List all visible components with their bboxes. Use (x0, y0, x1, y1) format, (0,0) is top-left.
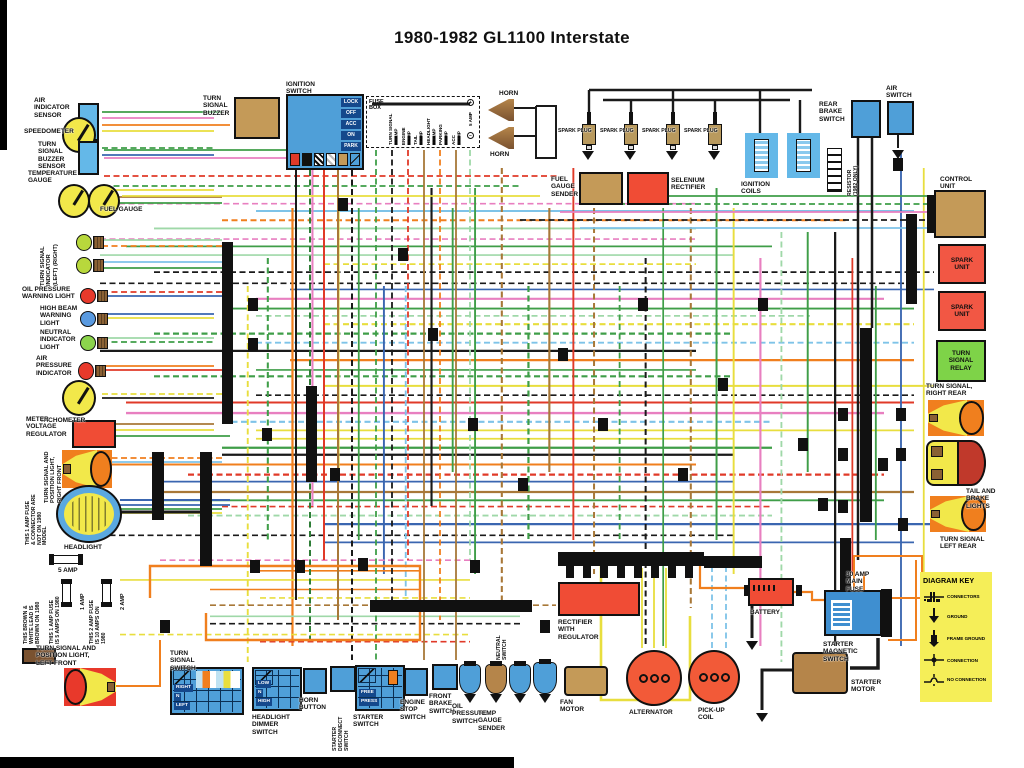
ignition-switch-grid (290, 98, 338, 150)
tachometer (62, 380, 96, 416)
horn-lower-label: HORN (490, 151, 516, 158)
switch-row-press: PRESS (359, 698, 379, 706)
spark-unit-1: SPARK UNIT (938, 244, 986, 284)
terminal-cell (350, 153, 360, 166)
tail-and-brake-lights (926, 440, 986, 486)
bulb-glass (76, 257, 92, 274)
bulb-base (97, 290, 108, 302)
switch-diagonal-cell (358, 668, 376, 683)
key-connection-label: CONNECTION (947, 658, 978, 663)
neutral-switch (509, 664, 531, 694)
coil-loop-icon (721, 673, 730, 682)
turn-signal-switch: RIGHTNLEFT (170, 667, 244, 715)
fan-motor (564, 666, 608, 696)
fuse-1amp (62, 580, 71, 606)
switch-row-left: LEFT (174, 702, 190, 710)
key-item: CONNECTION (923, 653, 990, 667)
coil-winding (754, 139, 769, 171)
turn-signal-left-rear-label: TURN SIGNAL LEFT REAR (940, 536, 1004, 551)
lamp-bulb-base (107, 682, 115, 691)
plug-tip (712, 145, 717, 151)
fuse-box: FUSE BOX TURN SIGNAL 15 AMPENGINE 5 AMPT… (366, 96, 480, 148)
turn-signal-position-light-left-front-label: TURN SIGNAL AND POSITION LIGHT, LEFT FRO… (36, 645, 122, 667)
bulb-cap (490, 661, 501, 666)
ground-arrow-icon (624, 151, 636, 160)
bulb-cap (464, 661, 475, 666)
gauge-needle (102, 190, 113, 206)
horn-button (303, 668, 327, 694)
ignition-position-lock: LOCK (341, 98, 361, 107)
switch-row-right: RIGHT (174, 684, 193, 692)
switch-row-free: FREE (359, 689, 376, 697)
scan-artifact (0, 757, 514, 768)
neutral-indicator-light-label: NEUTRAL INDICATOR LIGHT (40, 329, 84, 351)
fuse-slot: TURN SIGNAL 15 AMP (388, 99, 400, 145)
key-frame-ground-label: FRAME GROUND (947, 636, 985, 641)
ignition-coil-1 (745, 133, 778, 178)
bulb-glass (80, 288, 96, 304)
starter-motor-label: STARTER MOTOR (851, 679, 891, 694)
page-title: 1980-1982 GL1100 Interstate (0, 28, 1024, 48)
terminal-amp-label: 5 AMP (468, 107, 473, 131)
turn-signal-position-light-right-front (62, 450, 112, 488)
horn-button-label: HORN BUTTON (299, 697, 333, 712)
fuse-slot: TAIL 5 AMP (413, 99, 425, 145)
selenium-rectifier (627, 172, 669, 205)
ignition-switch-label: IGNITION SWITCH (286, 81, 326, 96)
turn-signal-indicator-left-bulb (76, 234, 104, 251)
ignition-position-acc: ACC (341, 120, 361, 129)
ground-arrow-icon (464, 694, 476, 703)
lamp-bulb-base (929, 414, 938, 423)
fuse-slot: ACC 5 AMP (451, 99, 463, 145)
lamp-bulb-base (931, 510, 940, 519)
fuse-5amp (50, 555, 82, 564)
plug-stem (671, 112, 675, 125)
control-unit (934, 190, 986, 238)
bulb-base (95, 365, 106, 378)
high-beam-warning-light (80, 311, 108, 327)
ground-arrow-icon (666, 151, 678, 160)
plug-stem (629, 112, 633, 125)
temp-gauge-sender (485, 664, 507, 694)
tail-bulb (931, 469, 942, 480)
turn-signal-position-light-left-front (64, 668, 116, 706)
tail-lens (957, 440, 986, 486)
terminal-cell (338, 153, 348, 166)
ground-arrow-icon (514, 694, 526, 703)
pick-up-coil (688, 650, 740, 704)
key-connectors-icon (923, 591, 945, 603)
ignition-coil-2 (787, 133, 820, 178)
spark-unit-2: SPARK UNIT (938, 291, 986, 331)
fuse-box-label: FUSE BOX (369, 99, 384, 111)
spark-plug-2-label: SPARK PLUG (600, 129, 640, 135)
front-brake-switch (432, 664, 458, 690)
diagram-key: DIAGRAM KEY CONNECTORSGROUNDFRAME GROUND… (920, 572, 992, 702)
alternator (626, 650, 682, 706)
fuse-slot: PARKING 5 AMP (438, 99, 450, 145)
switch-rows: LOWNHIGH (256, 680, 272, 706)
key-item: GROUND (923, 608, 990, 624)
headlight (58, 487, 120, 541)
ground-arrow-icon (539, 694, 551, 703)
high-beam-warning-light-label: HIGH BEAM WARNING LIGHT (40, 305, 84, 327)
spark-plug-4-label: SPARK PLUG (684, 129, 724, 135)
starter-magnetic-switch-label: STARTER MAGNETIC SWITCH (823, 641, 871, 663)
switch-row-n: N (174, 693, 181, 701)
battery-label: BATTERY (750, 609, 790, 616)
meter-voltage-regulator-label: METER VOLTAGE REGULATOR (26, 416, 70, 438)
note-1amp-1980-label: THIS 1 AMP FUSE IS 5 AMPS ON 1980 (50, 596, 62, 644)
gauge-needle (72, 190, 83, 206)
key-item: NO CONNECTION (923, 673, 990, 687)
spark-plug-1-label: SPARK PLUG (558, 129, 598, 135)
ignition-switch-positions: LOCKOFFACCONPARK (341, 98, 361, 151)
fuel-gauge-sender (579, 172, 623, 205)
ground-arrow-icon (490, 694, 502, 703)
turn-signal-right-rear (928, 400, 984, 436)
main-fuse-note-label: 30 AMP MAIN FUSE (846, 571, 882, 593)
key-item: FRAME GROUND (923, 630, 990, 648)
spark-plug-1 (581, 112, 597, 160)
starter-disconnect-switch-label: STARTER DISCONNECT SWITCH (333, 717, 350, 751)
scan-artifact (0, 0, 7, 150)
fuel-gauge-sender-label: FUEL GAUGE SENDER (551, 176, 578, 198)
terminal-cell (326, 153, 336, 166)
lamp-bulb-base (63, 464, 71, 473)
horn-upper-label: HORN (499, 90, 525, 97)
alternator-label: ALTERNATOR (629, 709, 687, 716)
fuse-slot: HEADLIGHT 10 AMP (426, 99, 438, 145)
accessory-terminal: + 5 AMP − (463, 98, 478, 146)
plug-tip (586, 145, 591, 151)
plug-tip (628, 145, 633, 151)
spark-plug-2 (623, 112, 639, 160)
switch-symbol (533, 662, 557, 694)
ignition-coils-label: IGNITION COILS (741, 181, 783, 196)
turn-signal-right-rear-label: TURN SIGNAL, RIGHT REAR (926, 383, 992, 398)
spark-unit-2-label: SPARK UNIT (951, 304, 973, 319)
bulb-base (93, 259, 104, 271)
ground-arrow-icon (708, 151, 720, 160)
headlight-dimmer-switch-label: HEADLIGHT DIMMER SWITCH (252, 714, 296, 736)
resistor-1982-only-label: RESISTOR (1982 ONLY) (848, 166, 860, 196)
switch-diagonal-cell (173, 670, 191, 685)
bulb-cap (514, 661, 525, 666)
ignition-position-on: ON (341, 131, 361, 140)
plug-stem (713, 112, 717, 125)
turn-signal-buzzer-sensor-label: TURN SIGNAL BUZZER SENSOR (38, 141, 78, 170)
ground-arrow-icon (582, 151, 594, 160)
terminal-cell (314, 153, 324, 166)
key-ground-icon (923, 608, 945, 624)
coil-loop-icon (661, 674, 670, 683)
terminal-cell (302, 153, 312, 166)
spark-plug-4 (707, 112, 723, 160)
engine-stop-switch-label: ENGINE STOP SWITCH (400, 699, 432, 721)
wiring-diagram-page: 1980-1982 GL1100 Interstate LOCKOFFACCON… (0, 0, 1024, 768)
headlight-dimmer-switch: LOWNHIGH (252, 667, 302, 711)
bulb-glass (76, 234, 92, 251)
gauge-needle (77, 386, 89, 403)
ignition-switch-terminals (290, 153, 360, 166)
air-switch (887, 101, 914, 135)
switch-row-high: HIGH (256, 698, 272, 706)
selenium-rectifier-label: SELENIUM RECTIFIER (671, 177, 715, 192)
ignition-switch: LOCKOFFACCONPARK (286, 94, 364, 170)
note-brown-white-label: THIS BROWN & WHITE LEAD IS BROWN ON 1980 (24, 602, 41, 644)
key-connection-icon (923, 653, 945, 667)
oil-pressure-switch (459, 664, 481, 694)
coil-loop-icon (650, 674, 659, 683)
air-pressure-indicator-label: AIR PRESSURE INDICATOR (36, 355, 80, 377)
wire-color-chips (196, 671, 240, 688)
starter-magnetic-switch (824, 590, 882, 636)
key-no-connection-icon (923, 673, 945, 687)
fuse-5amp-label: 5 AMP (58, 567, 88, 574)
rear-brake-switch-label: REAR BRAKE SWITCH (819, 101, 849, 123)
spark-unit-1-label: SPARK UNIT (951, 257, 973, 272)
note-2amp-1980-label: THIS 2 AMP FUSE IS 10 AMPS ON 1980 (90, 600, 107, 644)
fan-motor-label: FAN MOTOR (560, 699, 590, 714)
bulb-base (97, 337, 108, 349)
starter-disconnect-switch (330, 666, 356, 692)
temperature-gauge (58, 184, 90, 218)
plus-terminal-icon: + (467, 99, 474, 106)
engine-stop-switch (404, 668, 428, 696)
turn-signal-buzzer-label: TURN SIGNAL BUZZER (203, 95, 233, 117)
temp-gauge-sender-label: TEMP GAUGE SENDER (478, 710, 518, 732)
control-unit-label: CONTROL UNIT (940, 176, 984, 191)
switch-rows: FREEPRESS (359, 689, 379, 706)
oil-pressure-warning-light (80, 288, 108, 304)
starter-switch: FREEPRESS (355, 665, 405, 711)
coil-winding (796, 139, 811, 171)
plug-stem (587, 112, 591, 125)
lamp-lens (64, 669, 87, 705)
lamp-lens (90, 451, 112, 487)
starter-switch-label: STARTER SWITCH (353, 714, 389, 729)
battery (748, 578, 794, 606)
fuse-slots: TURN SIGNAL 15 AMPENGINE 5 AMPTAIL 5 AMP… (388, 99, 462, 145)
minus-terminal-icon: − (467, 132, 474, 139)
tail-and-brake-lights-label: TAIL AND BRAKE LIGHTS (966, 488, 1006, 510)
air-switch-label: AIR SWITCH (886, 85, 920, 100)
switch-rows: RIGHTNLEFT (174, 684, 193, 710)
speedometer-label: SPEEDOMETER (24, 128, 70, 135)
gauge-needle (77, 123, 89, 140)
bulb-base (97, 313, 108, 325)
turn-signal-relay: TURN SIGNAL RELAY (936, 340, 986, 382)
key-no-connection-label: NO CONNECTION (947, 677, 986, 682)
key-connectors-label: CONNECTORS (947, 594, 980, 599)
fuse-2amp-label: 2 AMP (120, 593, 126, 610)
tail-bulb (931, 446, 942, 457)
plug-tip (670, 145, 675, 151)
spark-plug-3-label: SPARK PLUG (642, 129, 682, 135)
pick-up-coil-label: PICK-UP COIL (698, 707, 740, 722)
headlight-label: HEADLIGHT (64, 544, 124, 551)
turn-signal-buzzer (234, 97, 280, 139)
turn-signal-relay-label: TURN SIGNAL RELAY (949, 350, 974, 372)
key-item: CONNECTORS (923, 591, 990, 603)
coil-loop-icon (710, 673, 719, 682)
turn-signal-indicator-right-bulb (76, 257, 104, 274)
coil-loop-icon (639, 674, 648, 683)
bulb-cap (539, 659, 551, 664)
switch-row-low: LOW (256, 680, 271, 688)
fuel-gauge-label: FUEL GAUGE (100, 206, 160, 213)
rectifier-with-regulator (558, 582, 640, 616)
wire-color-chip (388, 670, 398, 685)
headlight-glass (67, 496, 111, 533)
note-1amp-connector-label: THIS 1 AMP FUSE & CONNECTOR ARE NOT ON 1… (26, 494, 49, 545)
diagram-key-title: DIAGRAM KEY (923, 576, 990, 585)
air-pressure-indicator (78, 362, 106, 380)
bulb-base (93, 236, 104, 248)
fuse-slot: ENGINE 5 AMP (401, 99, 413, 145)
temperature-gauge-label: TEMPERATURE GAUGE (28, 170, 90, 185)
coil-loop-icon (699, 673, 708, 682)
air-indicator-sensor-label: AIR INDICATOR SENSOR (34, 97, 78, 119)
spark-plug-3 (665, 112, 681, 160)
ignition-position-park: PARK (341, 142, 361, 151)
key-ground-label: GROUND (947, 614, 967, 619)
lamp-lens (959, 401, 984, 435)
key-frame-ground-icon (923, 630, 945, 648)
fuse-1amp-label: 1 AMP (80, 593, 86, 610)
neutral-indicator-light (80, 335, 108, 351)
turn-signal-switch-label: TURN SIGNAL SWITCH (170, 650, 204, 672)
terminal-cell (290, 153, 300, 166)
turn-signal-indicator-label: TURN SIGNAL INDICATOR (LEFT) (RIGHT) (40, 244, 59, 286)
neutral-switch-label: NEUTRAL SWITCH (497, 635, 509, 660)
switch-row-n: N (256, 689, 263, 697)
resistor-1982-only (827, 148, 842, 192)
bulb-glass (78, 362, 94, 380)
rear-brake-switch (851, 100, 881, 138)
rectifier-with-regulator-label: RECTIFIER WITH REGULATOR (558, 619, 610, 641)
ignition-position-off: OFF (341, 109, 361, 118)
oil-pressure-warning-light-label: OIL PRESSURE WARNING LIGHT (22, 286, 80, 301)
